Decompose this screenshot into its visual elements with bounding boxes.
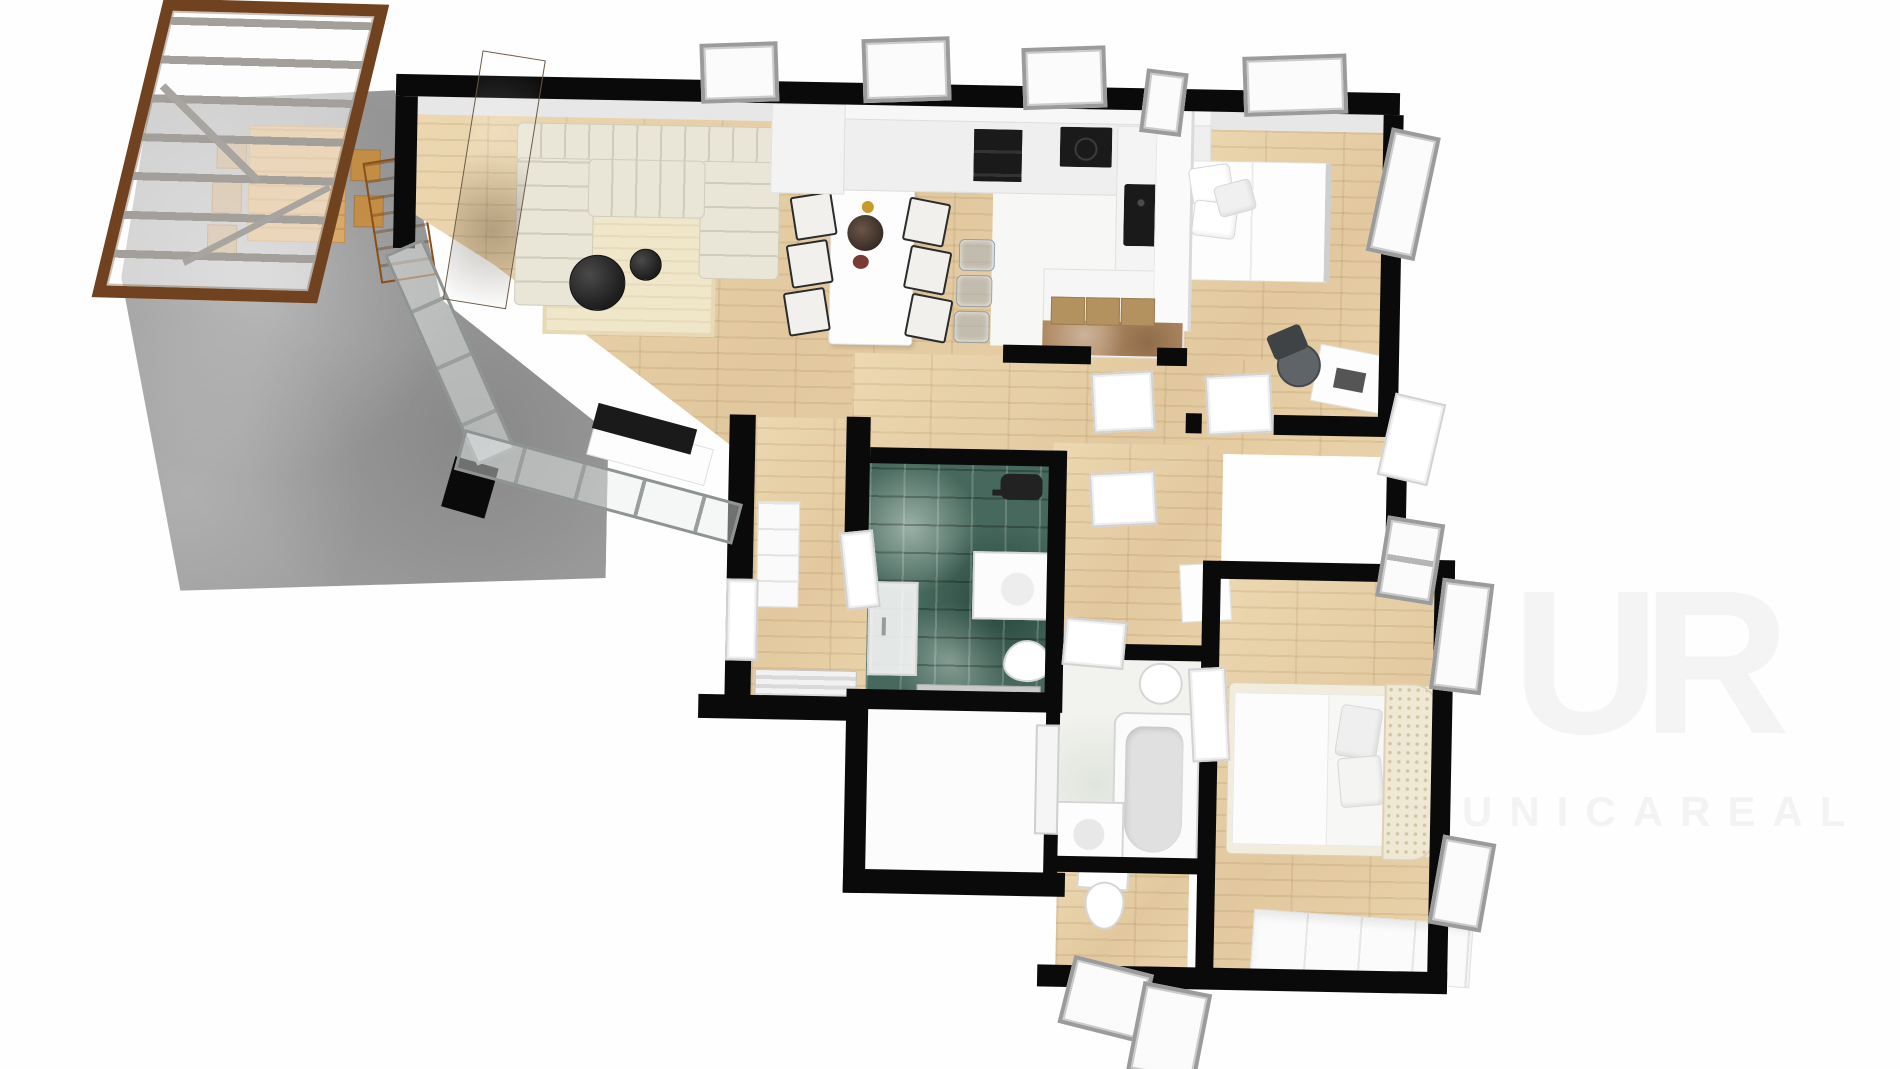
wall-kitchen-south-b [1157, 348, 1187, 367]
wall-utility-south [843, 869, 1065, 897]
door-bedroom2 [1188, 667, 1231, 763]
dining-chair [786, 239, 834, 289]
floorplan-scene [0, 0, 1900, 1069]
bar-stool [953, 311, 990, 344]
floorplan-canvas: UR UNICAREAL [0, 0, 1900, 1069]
bar-stool [959, 239, 996, 272]
sofa-right-chaise [698, 161, 780, 281]
watermark-logo: UR [1512, 545, 1772, 781]
bathtub-basin [1124, 726, 1184, 853]
door-kitchen-hall [1091, 370, 1156, 433]
entrance-door [725, 578, 759, 661]
shower-handle [882, 617, 886, 635]
door-hall-corridor [1089, 470, 1158, 527]
hall-closet [756, 501, 800, 608]
door-utility-room [1034, 724, 1060, 834]
wall-utility-west [843, 707, 869, 893]
tall-cabinet [770, 103, 846, 194]
island-tatami-panel [1051, 297, 1086, 326]
bathroom2-door [1061, 617, 1127, 670]
wall-bath-south [846, 689, 1060, 713]
wall-kitchen-south-a [1003, 345, 1091, 365]
window-top-3 [1021, 45, 1107, 110]
wall-bedroom1-south-b [1274, 415, 1398, 437]
pillow [1337, 755, 1385, 809]
dining-chair [904, 293, 954, 344]
utility-room-floor [863, 707, 1044, 876]
wall-left-upper [393, 96, 418, 248]
wall-bath2-wc-divider [1048, 856, 1200, 875]
dining-chair [790, 191, 838, 241]
dining-chair [783, 287, 831, 337]
partition-wall [1153, 109, 1195, 332]
wall-bath2-north-b [1123, 644, 1203, 662]
window-bedroom1-top [1242, 53, 1348, 116]
window-top-2 [861, 36, 951, 103]
window-top-1 [699, 41, 779, 104]
island-tatami-panel [1086, 297, 1121, 326]
bed-bedroom2-duvet-left [1232, 692, 1331, 846]
wall-hall-south [698, 694, 850, 721]
wall-faucet-black [1000, 474, 1042, 501]
door-bedroom1-hall [1205, 373, 1274, 436]
wall-bedroom1-south-a [1186, 413, 1202, 433]
wall-hall-divider [845, 417, 871, 535]
dining-chair [902, 197, 952, 248]
sofa-middle-seats [588, 159, 706, 219]
wall-bedroom2-north [1219, 561, 1389, 582]
window-top-small [1139, 68, 1189, 137]
bar-stool [956, 275, 993, 308]
pillow [1334, 704, 1384, 762]
kitchen-sink [1123, 184, 1158, 247]
cooktop [1060, 127, 1113, 168]
double-oven [973, 129, 1022, 182]
dining-chair [903, 245, 953, 296]
wall-utility-east-b [1043, 830, 1058, 876]
watermark-brand: UNICAREAL [1462, 788, 1862, 836]
island-tatami-panel [1121, 298, 1156, 327]
